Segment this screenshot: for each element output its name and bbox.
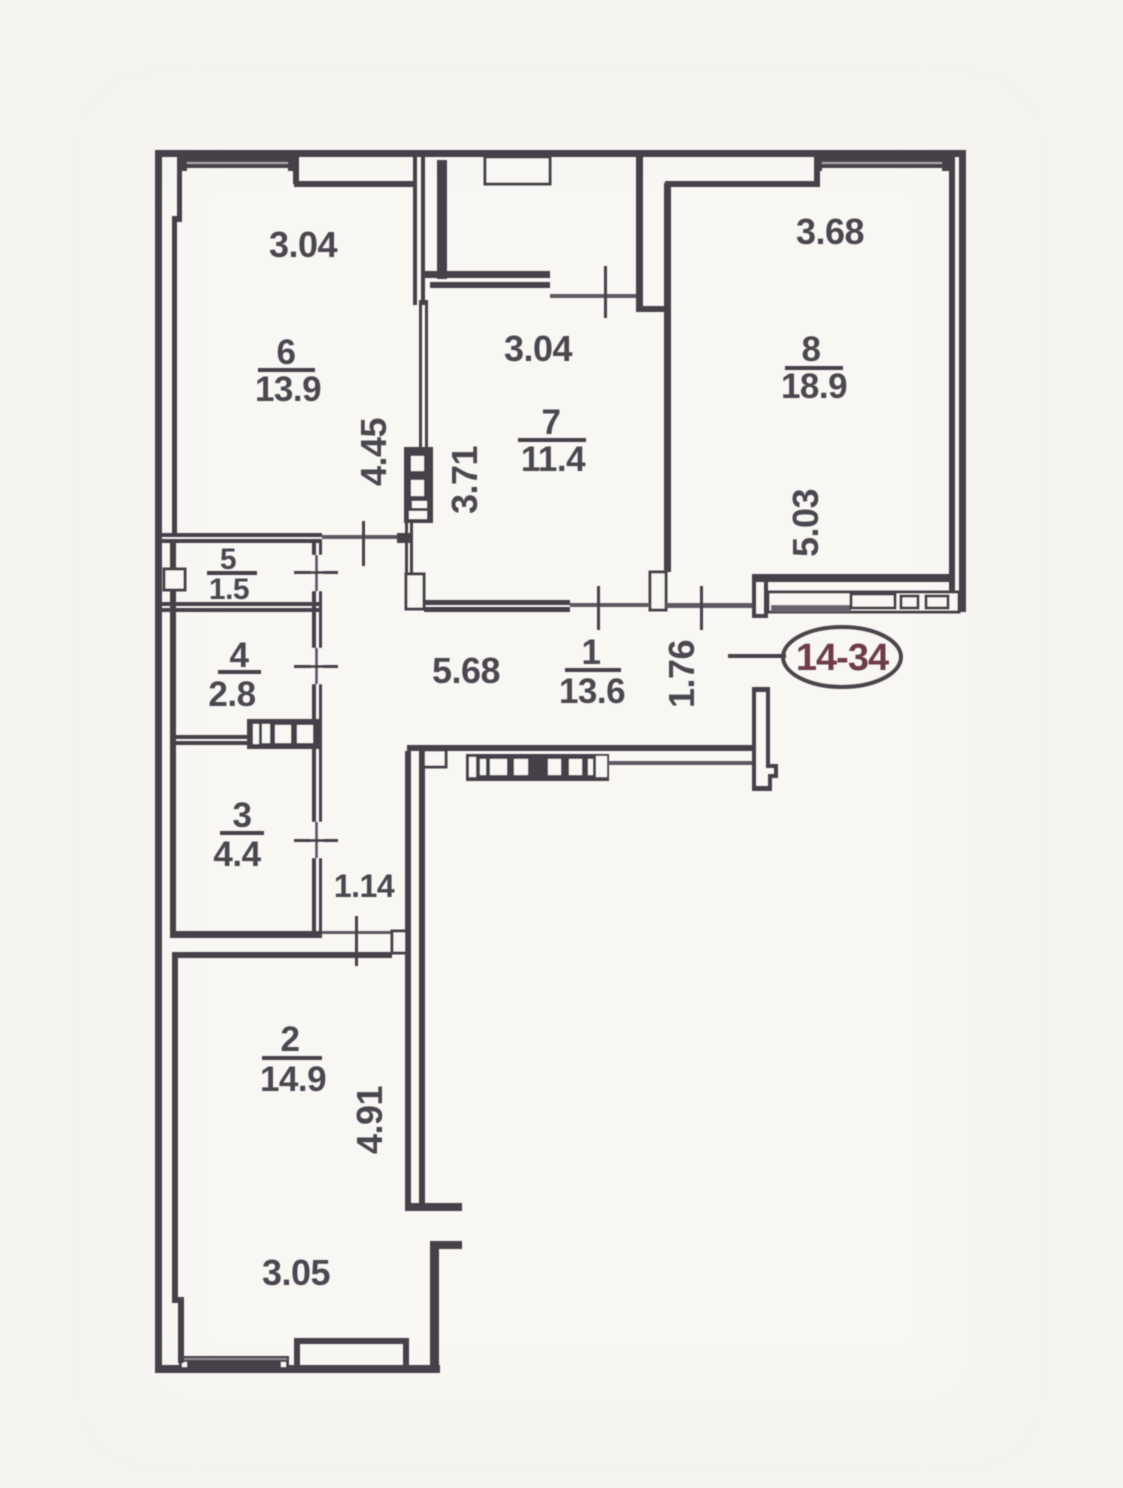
svg-text:5.03: 5.03	[785, 489, 826, 557]
svg-text:1.14: 1.14	[334, 868, 395, 904]
svg-text:6: 6	[277, 333, 296, 372]
svg-text:3.04: 3.04	[504, 328, 573, 369]
svg-text:2: 2	[281, 1020, 300, 1059]
svg-text:8: 8	[802, 330, 821, 369]
svg-text:3.68: 3.68	[796, 211, 864, 252]
svg-text:4.45: 4.45	[353, 417, 394, 486]
svg-text:3.71: 3.71	[444, 445, 485, 514]
svg-text:1: 1	[582, 633, 601, 672]
svg-text:3: 3	[233, 796, 252, 835]
svg-text:13.6: 13.6	[559, 672, 625, 711]
svg-text:2.8: 2.8	[208, 675, 255, 714]
svg-text:3.05: 3.05	[262, 1252, 331, 1293]
svg-text:1.5: 1.5	[209, 573, 249, 606]
svg-text:3.04: 3.04	[269, 224, 338, 265]
svg-text:4: 4	[230, 636, 250, 675]
svg-text:13.9: 13.9	[255, 370, 321, 409]
svg-text:4.91: 4.91	[349, 1085, 390, 1154]
svg-text:1.76: 1.76	[661, 640, 702, 708]
svg-text:7: 7	[542, 403, 561, 442]
svg-text:4.4: 4.4	[213, 835, 261, 874]
svg-text:14.9: 14.9	[260, 1060, 326, 1099]
svg-text:5.68: 5.68	[432, 650, 500, 691]
svg-text:18.9: 18.9	[781, 367, 847, 406]
svg-text:14-34: 14-34	[796, 637, 889, 679]
svg-text:11.4: 11.4	[521, 440, 586, 479]
